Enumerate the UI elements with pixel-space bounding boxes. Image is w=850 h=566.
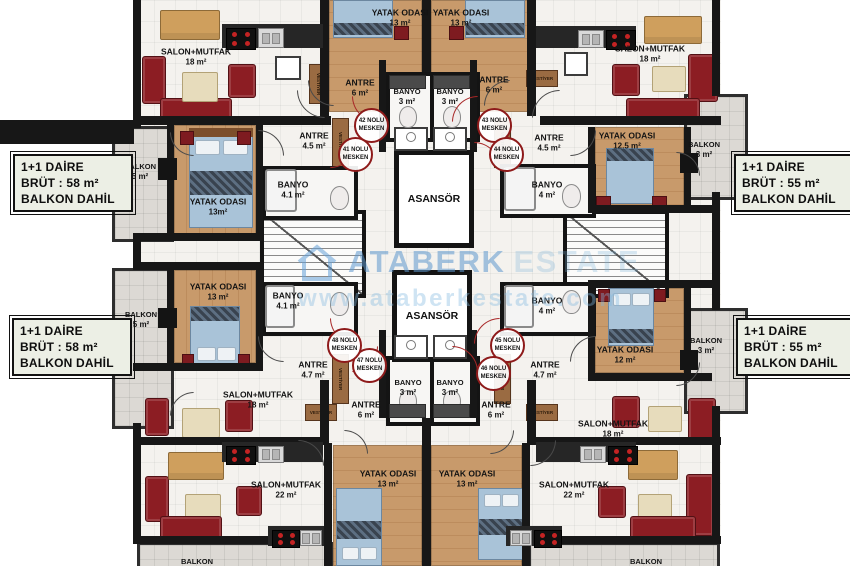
room-label-salon-mutfak: SALON+MUTFAK18 m² xyxy=(615,43,685,64)
window-pier xyxy=(158,158,177,180)
wall xyxy=(712,192,720,310)
toilet-icon xyxy=(330,292,349,316)
room-label-yatak-odasi: YATAK ODASI13 m² xyxy=(433,7,490,28)
armchair xyxy=(145,398,169,436)
armchair xyxy=(612,64,640,96)
wall xyxy=(540,116,721,125)
wall xyxy=(133,363,263,371)
bathtub-icon xyxy=(504,285,534,328)
room-label-salon-mutfak: SALON+MUTFAK18 m² xyxy=(223,389,293,410)
dining-table xyxy=(168,452,224,480)
room-label-banyo: BANYO3 m² xyxy=(436,378,463,398)
sink-icon xyxy=(578,30,604,48)
sink-icon xyxy=(510,530,532,546)
wall xyxy=(712,0,720,96)
room-label-balkon: BALKON xyxy=(630,557,662,566)
stove-icon xyxy=(272,530,300,548)
wall xyxy=(133,116,331,125)
room-label-yatak-odasi: YATAK ODASI13m² xyxy=(190,196,247,217)
room-label-banyo: BANYO4.1 m² xyxy=(273,290,304,311)
stove-icon xyxy=(534,530,562,548)
mesken-badge-44: 44 NOLUMESKEN xyxy=(489,137,524,172)
room-label-antre: ANTRE6 m² xyxy=(479,74,508,95)
washer-icon xyxy=(433,127,467,151)
wall xyxy=(712,406,720,544)
wall xyxy=(594,280,712,288)
armchair xyxy=(228,64,256,98)
wall xyxy=(133,262,263,270)
wall xyxy=(594,205,712,213)
mesken-badge-46: 46 NOLUMESKEN xyxy=(476,356,511,391)
room-label-salon-mutfak: SALON+MUTFAK22 m² xyxy=(251,479,321,500)
window-pier xyxy=(158,308,177,328)
bed xyxy=(478,488,524,560)
elevator-label: ASANSÖR xyxy=(408,193,461,205)
room-label-yatak-odasi: YATAK ODASI13 m² xyxy=(360,468,417,489)
wall xyxy=(588,280,595,381)
sink-icon xyxy=(258,446,284,463)
dining-table xyxy=(644,16,702,44)
shower-icon xyxy=(433,404,470,418)
coffee-table xyxy=(648,406,682,432)
room-label-balkon: BALKON xyxy=(181,557,213,566)
room-label-balkon: BALKON3 m² xyxy=(690,336,722,356)
bed xyxy=(606,148,654,204)
toilet-icon xyxy=(562,290,581,314)
room-label-banyo: BANYO3 m² xyxy=(436,87,463,107)
stove-icon xyxy=(608,446,638,465)
elevator-label: ASANSÖR xyxy=(406,310,459,322)
toilet-icon xyxy=(562,184,581,208)
room-label-banyo: BANYO4.1 m² xyxy=(278,179,309,200)
room-label-yatak-odasi: YATAK ODASI12.5 m² xyxy=(599,130,656,151)
fridge-icon xyxy=(564,52,588,76)
wall xyxy=(527,380,536,445)
room-label-antre: ANTRE4.7 m² xyxy=(298,359,327,380)
wall xyxy=(422,418,431,566)
wall xyxy=(133,233,263,241)
fridge-icon xyxy=(275,56,301,80)
bed xyxy=(608,288,654,346)
floor-plan: ASANSÖR ASANSÖR xyxy=(0,0,850,566)
bed xyxy=(190,306,240,366)
mesken-badge-42: 42 NOLUMESKEN xyxy=(354,108,389,143)
wall xyxy=(133,0,141,128)
info-box-bottom-left: 1+1 DAİREBRÜT : 58 m²BALKON DAHİL xyxy=(12,318,132,376)
room-label-yatak-odasi: YATAK ODASI13 m² xyxy=(190,281,247,302)
room-label-antre: ANTRE6 m² xyxy=(345,77,374,98)
wall xyxy=(324,443,332,566)
wall xyxy=(256,262,263,371)
room-label-banyo: BANYO4 m² xyxy=(532,179,563,200)
room-label-antre: ANTRE4.5 m² xyxy=(299,130,328,151)
stove-icon xyxy=(226,446,256,465)
room-label-salon-mutfak: SALON+MUTFAK22 m² xyxy=(539,479,609,500)
dining-table xyxy=(160,10,220,40)
room-label-banyo: BANYO4 m² xyxy=(532,295,563,316)
room-label-balkon: BALKON3 m² xyxy=(688,140,720,160)
toilet-icon xyxy=(330,186,349,210)
room-label-antre: ANTRE6 m² xyxy=(481,399,510,420)
wall xyxy=(320,380,329,445)
info-box-top-right: 1+1 DAİREBRÜT : 55 m²BALKON DAHİL xyxy=(734,154,850,212)
bed xyxy=(336,488,382,566)
room-label-yatak-odasi: YATAK ODASI13 m² xyxy=(372,7,429,28)
wall xyxy=(0,120,134,144)
room-label-salon-mutfak: SALON+MUTFAK18 m² xyxy=(161,46,231,67)
coffee-table xyxy=(182,72,218,102)
room-label-banyo: BANYO3 m² xyxy=(393,87,420,107)
sink-icon xyxy=(258,28,284,48)
wall xyxy=(527,0,536,116)
toilet-icon xyxy=(399,106,417,128)
info-box-top-left: 1+1 DAİREBRÜT : 58 m²BALKON DAHİL xyxy=(13,154,133,212)
elevator-top: ASANSÖR xyxy=(394,150,474,248)
washer-icon xyxy=(394,127,428,151)
sink-icon xyxy=(580,446,606,463)
sink-icon xyxy=(300,530,322,546)
wall xyxy=(522,443,530,566)
room-label-salon-mutfak: SALON+MUTFAK18 m² xyxy=(578,418,648,439)
room-label-antre: ANTRE4.5 m² xyxy=(534,132,563,153)
coffee-table xyxy=(652,66,686,92)
nightstand xyxy=(237,131,251,145)
nightstand xyxy=(598,289,610,302)
shower-icon xyxy=(389,404,426,418)
room-label-yatak-odasi: YATAK ODASI12 m² xyxy=(597,344,654,365)
mesken-badge-48: 48 NOLUMESKEN xyxy=(327,328,362,363)
room-label-antre: ANTRE6 m² xyxy=(351,399,380,420)
room-label-yatak-odasi: YATAK ODASI13 m² xyxy=(439,468,496,489)
nightstand xyxy=(654,289,666,302)
room-label-banyo: BANYO3 m² xyxy=(394,378,421,398)
washer-icon xyxy=(394,335,428,359)
info-box-bottom-right: 1+1 DAİREBRÜT : 55 m²BALKON DAHİL xyxy=(736,318,850,376)
room-label-antre: ANTRE4.7 m² xyxy=(530,359,559,380)
